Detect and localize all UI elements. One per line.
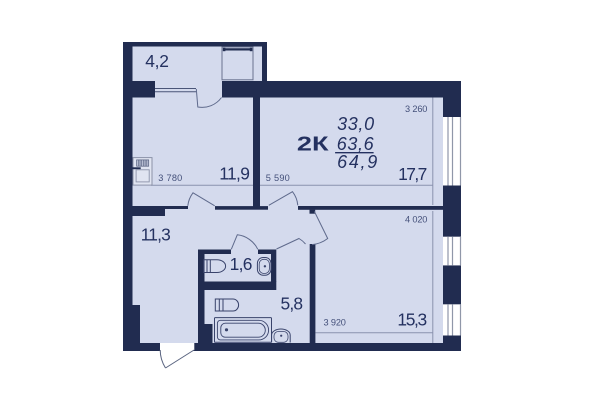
svg-text:4,2: 4,2 — [145, 51, 169, 71]
svg-text:33,0: 33,0 — [337, 114, 374, 134]
svg-text:11,9: 11,9 — [219, 163, 250, 183]
svg-text:5 590: 5 590 — [266, 173, 290, 183]
svg-text:3 920: 3 920 — [324, 318, 346, 328]
svg-text:2К: 2К — [297, 133, 329, 156]
svg-text:5,8: 5,8 — [281, 293, 304, 313]
svg-text:1,6: 1,6 — [230, 254, 253, 274]
svg-text:15,3: 15,3 — [397, 309, 427, 329]
svg-text:17,7: 17,7 — [398, 164, 427, 184]
svg-text:3 260: 3 260 — [405, 104, 427, 114]
svg-text:3 780: 3 780 — [158, 173, 182, 183]
svg-text:11,3: 11,3 — [141, 225, 171, 245]
svg-text:64,9: 64,9 — [337, 152, 377, 172]
svg-text:4 020: 4 020 — [405, 214, 427, 224]
